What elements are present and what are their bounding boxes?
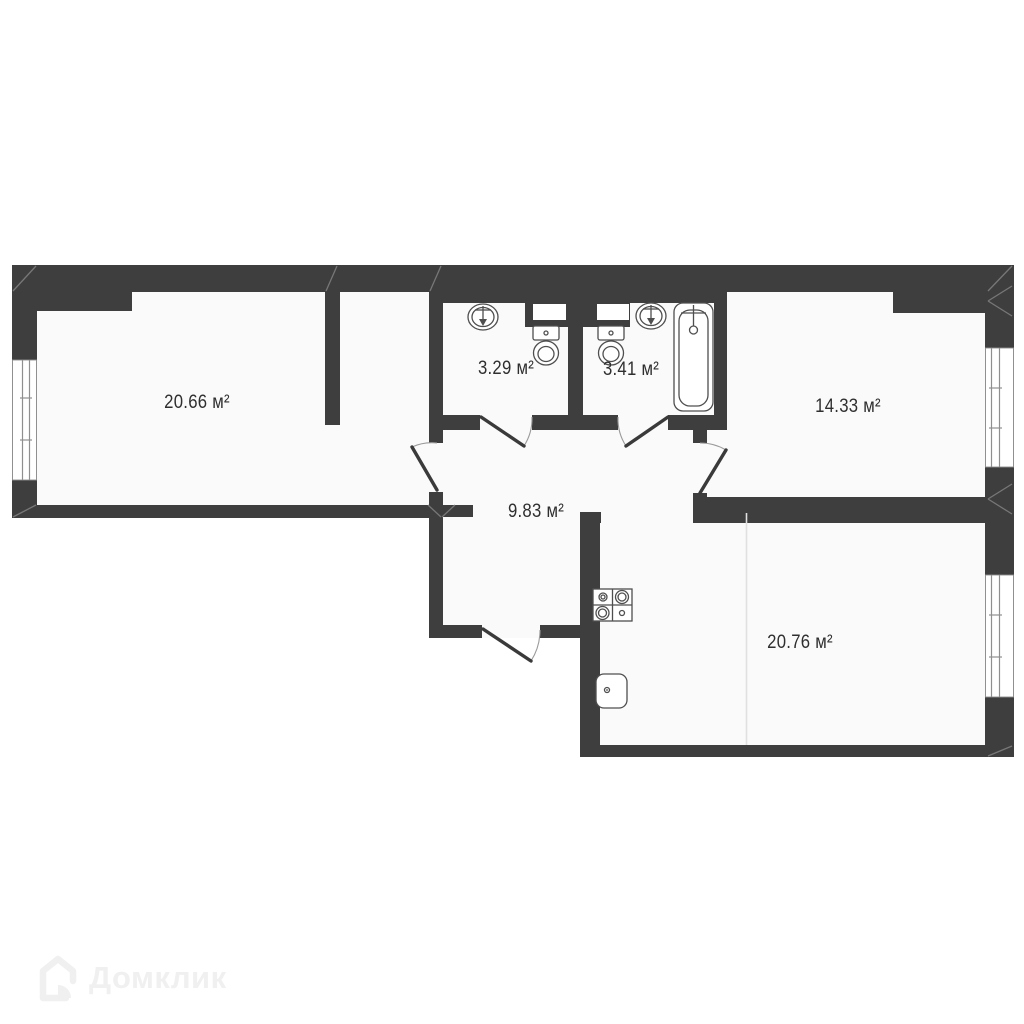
bathtub-icon [674,303,713,411]
watermark-text: Домклик [89,960,227,996]
wall [12,265,1014,292]
window [986,348,1014,467]
doorway-opening [325,425,340,505]
kitchen-sink-icon [596,674,627,708]
floor-plan-page: 20.66 м² 3.29 м² 3.41 м² 14.33 м² 9.83 м… [0,0,1024,1024]
room-area-label: 14.33 м² [815,396,881,418]
room-right-top-floor [727,292,893,497]
room-area-label: 3.41 м² [603,359,659,381]
watermark: Домклик [36,954,227,1002]
wall [429,492,443,638]
wall [693,427,707,443]
duct-niche [597,304,629,320]
wall [443,292,727,303]
hallway-floor [443,512,580,625]
wall [429,292,443,443]
wall [580,512,600,757]
kitchen-passage-floor [601,497,693,523]
wall [893,292,985,313]
sink-icon [636,303,666,329]
stove-icon [593,589,632,621]
duct-niche [533,304,566,320]
wall [540,625,580,638]
window [13,360,37,480]
room-area-label: 3.29 м² [478,358,534,380]
wall [714,303,727,427]
room-floor [132,292,325,312]
wall [12,505,443,518]
room-area-label: 9.83 м² [508,501,564,523]
entry-strip-floor [340,292,429,505]
sink-icon [468,304,498,330]
room-area-label: 20.76 м² [767,632,833,654]
wall [443,505,473,517]
wall [580,745,1014,757]
wall [693,497,985,523]
toilet-icon [533,326,559,365]
wall [37,292,132,311]
window [986,575,1014,697]
wall [429,625,482,638]
room-area-label: 20.66 м² [164,392,230,414]
domclick-house-icon [36,954,80,1002]
doorway-opening [429,443,443,492]
room-right-top-floor [893,313,985,497]
